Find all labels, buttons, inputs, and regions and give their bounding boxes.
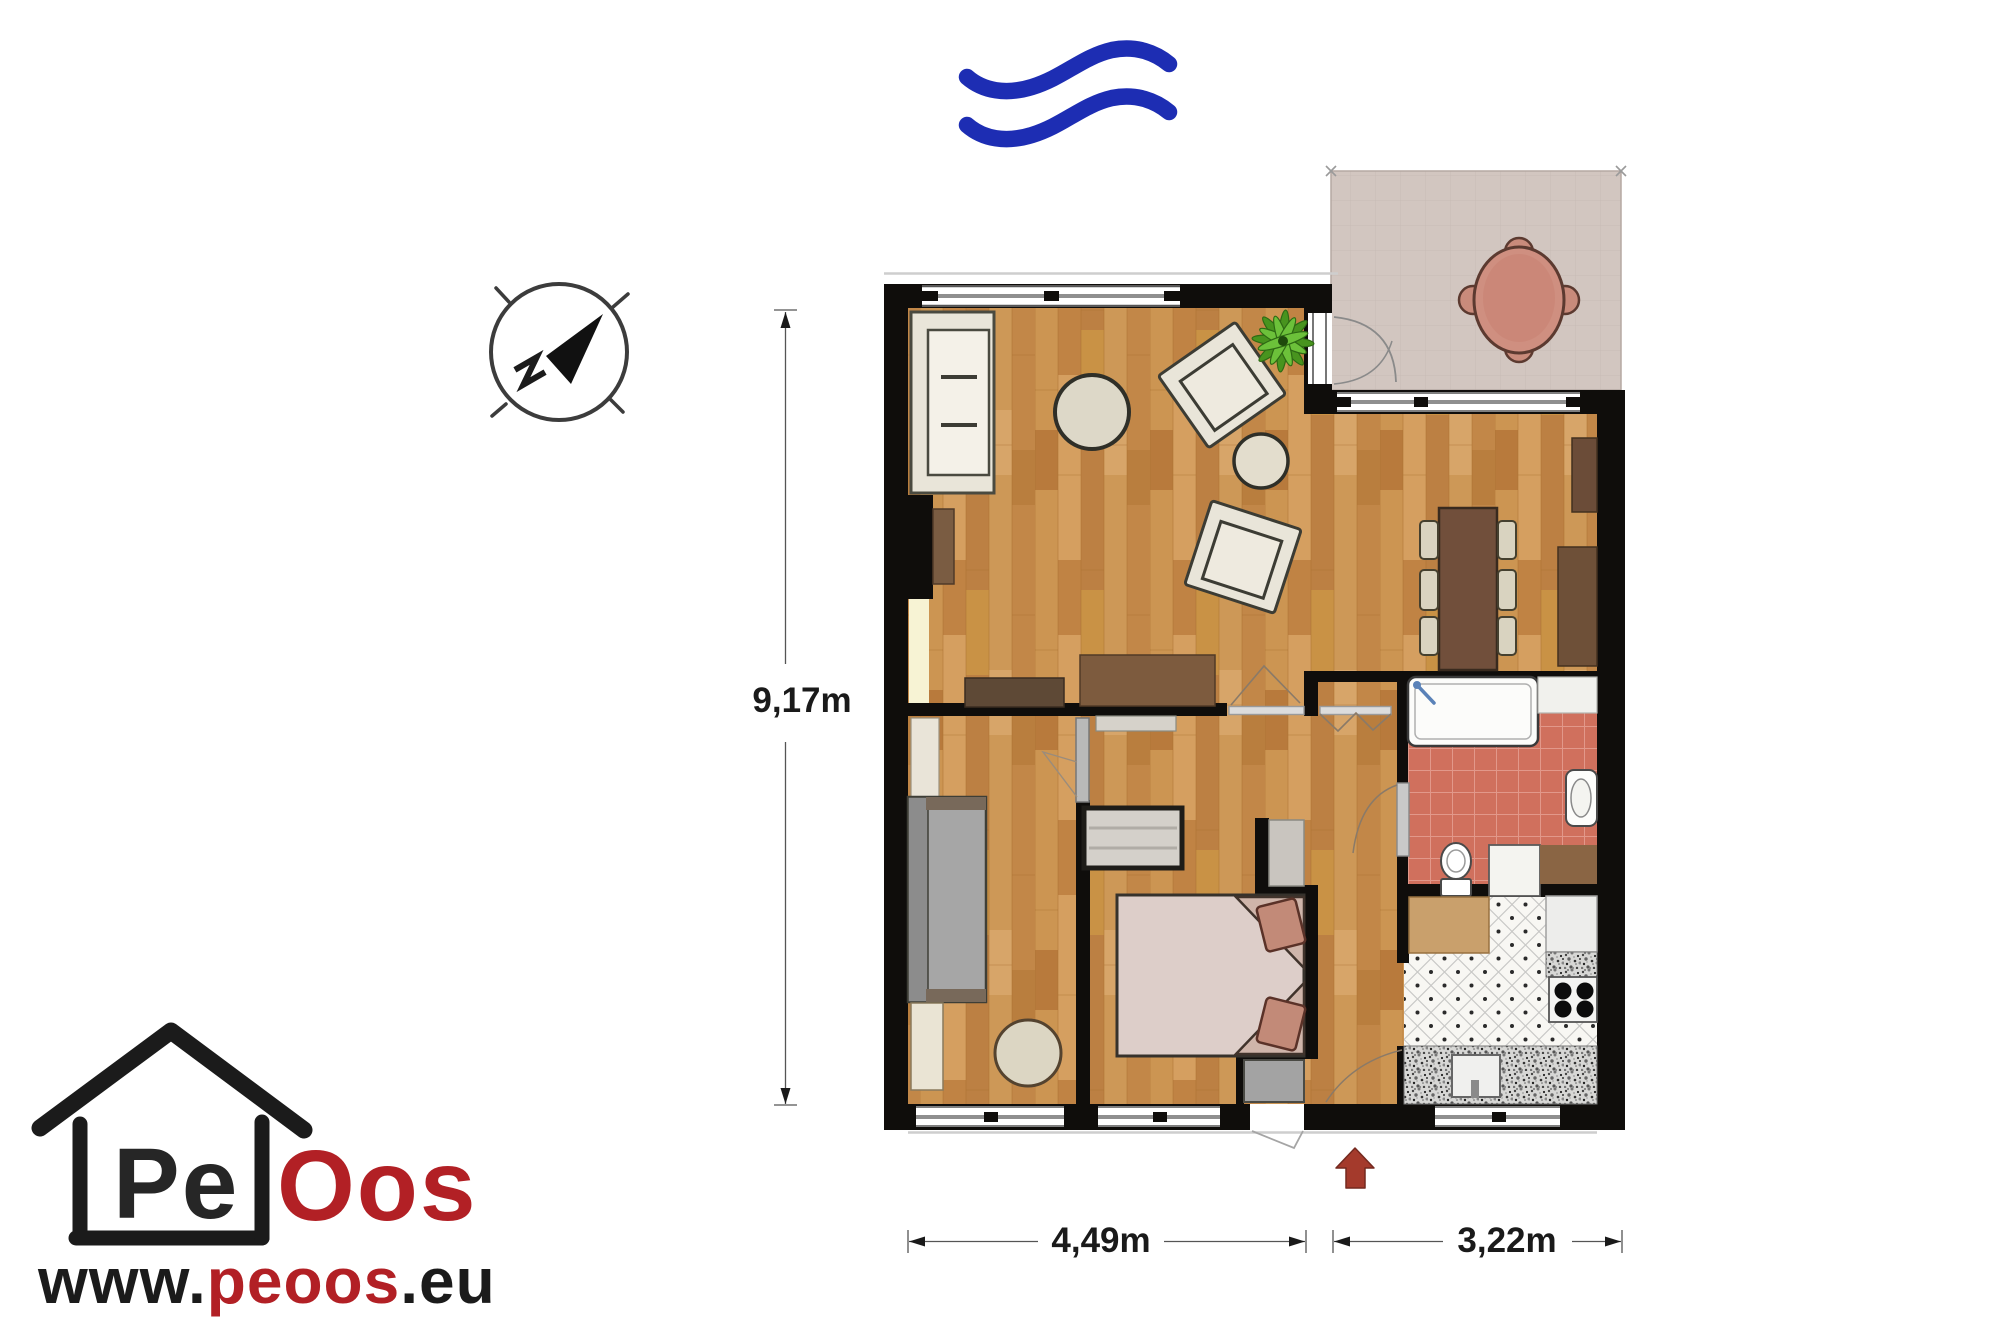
svg-text:9,17m: 9,17m (752, 681, 851, 720)
svg-text:4,49m: 4,49m (1051, 1221, 1150, 1260)
svg-text:www.peoos.eu: www.peoos.eu (37, 1245, 496, 1317)
svg-text:3,22m: 3,22m (1457, 1221, 1556, 1260)
svg-text:Pe: Pe (113, 1128, 239, 1240)
svg-text:Oos: Oos (277, 1130, 477, 1242)
